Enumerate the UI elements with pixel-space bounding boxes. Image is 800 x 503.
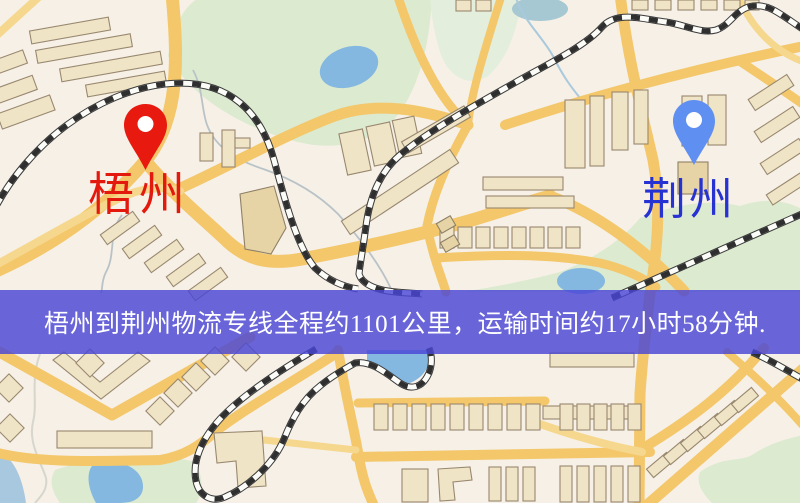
route-info-text: 梧州到荆州物流专线全程约1101公里，运输时间约17小时58分钟.: [0, 304, 766, 340]
route-info-banner: 梧州到荆州物流专线全程约1101公里，运输时间约17小时58分钟.: [0, 290, 800, 354]
jingzhou-city-label: 荆州: [642, 178, 736, 222]
map-canvas: [0, 0, 800, 503]
wuzhou-city-label: 梧州: [88, 172, 190, 218]
map-screenshot: 梧州 荆州 梧州到荆州物流专线全程约1101公里，运输时间约17小时58分钟.: [0, 0, 800, 503]
